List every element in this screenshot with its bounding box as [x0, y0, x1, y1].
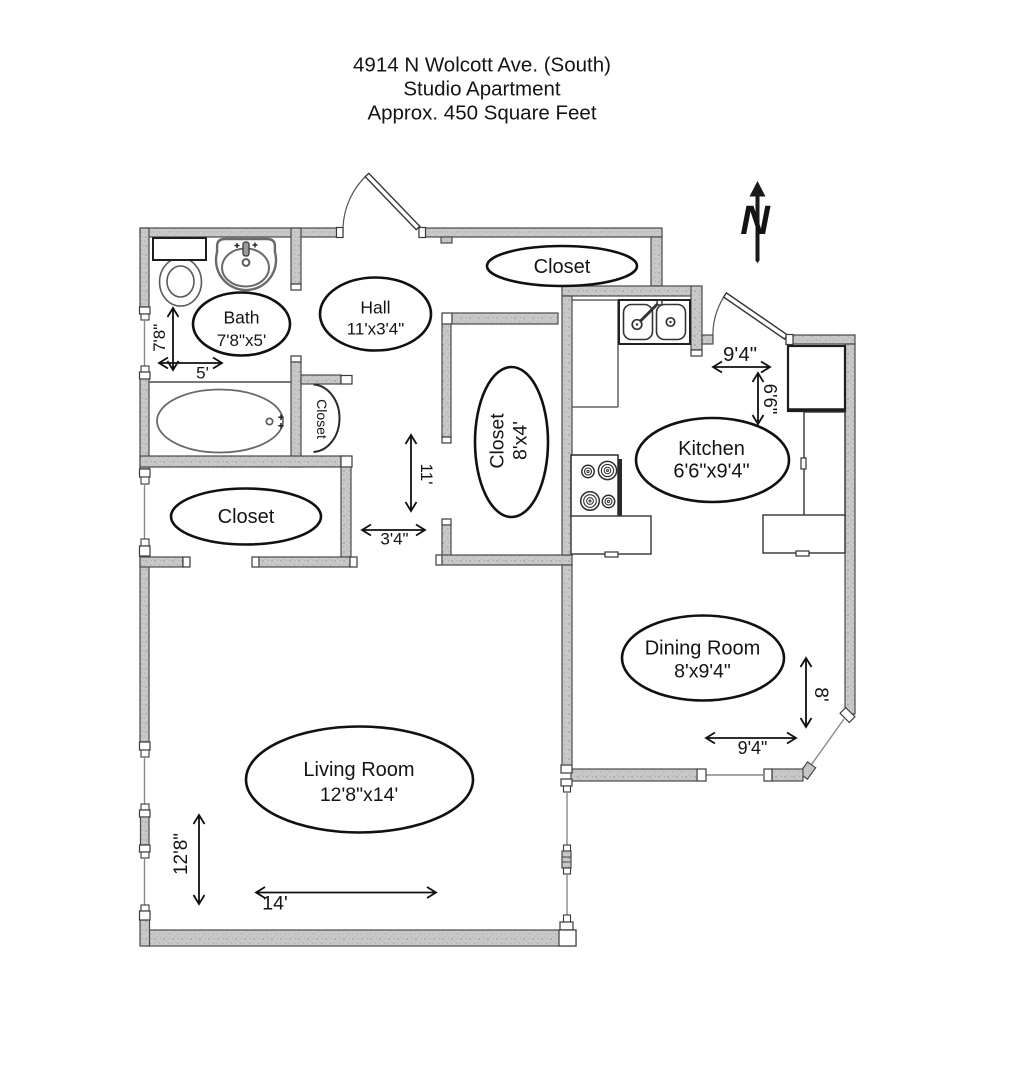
svg-text:11'x3'4": 11'x3'4"	[347, 320, 405, 339]
svg-text:Approx. 450 Square Feet: Approx. 450 Square Feet	[367, 102, 596, 125]
svg-text:Closet: Closet	[314, 399, 330, 439]
svg-text:Closet: Closet	[534, 256, 591, 278]
svg-text:6'6": 6'6"	[760, 384, 781, 415]
svg-text:14': 14'	[262, 893, 287, 915]
svg-text:9'4": 9'4"	[723, 343, 757, 366]
svg-text:3'4": 3'4"	[380, 530, 408, 549]
svg-text:Bath: Bath	[224, 308, 260, 328]
svg-text:Living Room: Living Room	[303, 759, 414, 781]
svg-text:8': 8'	[810, 687, 832, 702]
svg-text:8'x4': 8'x4'	[510, 421, 532, 460]
svg-text:12'8": 12'8"	[171, 833, 192, 875]
svg-text:Kitchen: Kitchen	[678, 438, 745, 460]
svg-text:7'8"x5': 7'8"x5'	[217, 331, 266, 350]
svg-text:12'8"x14': 12'8"x14'	[320, 784, 398, 806]
svg-text:Hall: Hall	[360, 298, 390, 318]
svg-text:6'6"x9'4": 6'6"x9'4"	[673, 461, 749, 483]
svg-text:Dining Room: Dining Room	[645, 638, 761, 660]
svg-text:8'x9'4": 8'x9'4"	[674, 661, 731, 683]
svg-text:9'4": 9'4"	[738, 738, 768, 758]
svg-text:11': 11'	[417, 464, 436, 485]
svg-text:Studio Apartment: Studio Apartment	[403, 78, 561, 101]
svg-text:Closet: Closet	[487, 413, 509, 469]
svg-text:5': 5'	[196, 364, 209, 383]
svg-text:4914 N Wolcott Ave. (South): 4914 N Wolcott Ave. (South)	[353, 54, 611, 77]
svg-text:Closet: Closet	[218, 506, 275, 528]
svg-text:N: N	[740, 197, 771, 243]
svg-text:7'8": 7'8"	[150, 324, 169, 352]
